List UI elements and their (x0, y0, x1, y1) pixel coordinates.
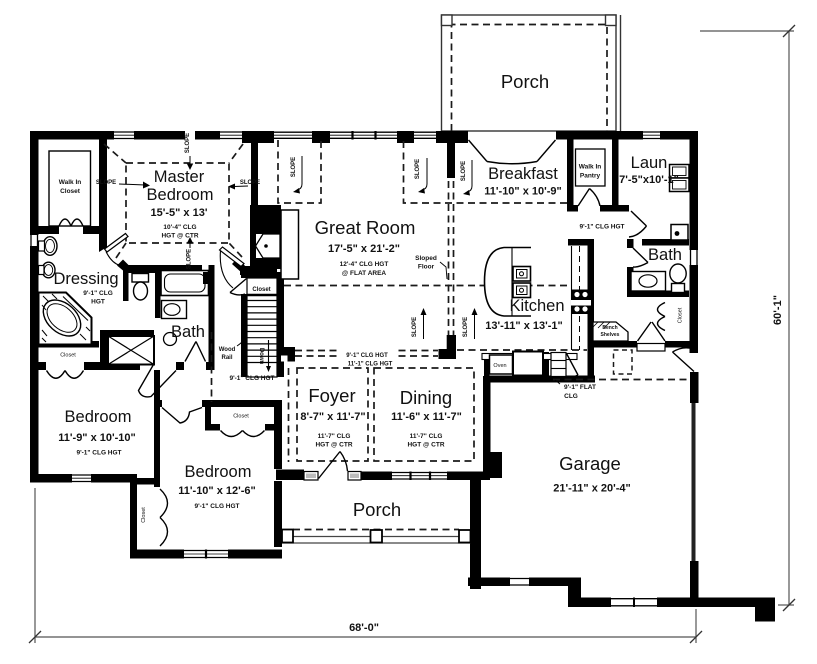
svg-text:10'-4" CLG: 10'-4" CLG (163, 224, 196, 231)
svg-text:11'-7" CLG: 11'-7" CLG (410, 433, 443, 440)
svg-text:9'-1" FLAT: 9'-1" FLAT (564, 384, 596, 391)
svg-text:HGT @ CTR: HGT @ CTR (407, 442, 444, 449)
svg-text:SLOPE: SLOPE (187, 249, 193, 269)
svg-text:HGT @ CTR: HGT @ CTR (161, 233, 198, 240)
svg-text:Closet: Closet (678, 307, 684, 323)
svg-text:13'-11" x 13'-1": 13'-11" x 13'-1" (485, 320, 562, 332)
svg-text:9'-1" CLG HGT: 9'-1" CLG HGT (346, 353, 388, 359)
svg-text:Floor: Floor (418, 264, 435, 271)
svg-text:Sloped: Sloped (415, 255, 437, 262)
svg-text:Wood: Wood (219, 347, 236, 353)
svg-text:Closet: Closet (60, 353, 76, 359)
svg-text:Walk In: Walk In (59, 179, 82, 186)
svg-text:Down: Down (258, 348, 264, 365)
svg-text:Bath: Bath (171, 323, 205, 341)
svg-text:Bedroom: Bedroom (185, 463, 252, 481)
svg-text:Porch: Porch (353, 499, 401, 520)
svg-text:7'-5"x10'-1": 7'-5"x10'-1" (619, 174, 679, 186)
svg-text:Dining: Dining (400, 387, 452, 408)
svg-text:Shelves: Shelves (601, 332, 620, 338)
svg-text:11'-10" x 10'-9": 11'-10" x 10'-9" (484, 186, 561, 198)
svg-text:Closet: Closet (60, 188, 81, 195)
svg-text:Oven: Oven (493, 363, 506, 369)
svg-text:SLOPE: SLOPE (291, 157, 297, 177)
svg-text:SLOPE: SLOPE (463, 317, 469, 337)
svg-text:Great Room: Great Room (315, 217, 416, 238)
svg-text:9'-1" CLG: 9'-1" CLG (83, 290, 113, 297)
svg-text:SLOPE: SLOPE (185, 133, 191, 153)
svg-text:Breakfast: Breakfast (488, 165, 558, 183)
svg-text:11'-7" CLG: 11'-7" CLG (318, 433, 351, 440)
svg-text:11'-1" CLG HGT: 11'-1" CLG HGT (348, 362, 393, 368)
svg-text:21'-11" x 20'-4": 21'-11" x 20'-4" (553, 483, 630, 495)
svg-text:9'-1" CLG HGT: 9'-1" CLG HGT (579, 224, 624, 231)
svg-text:Closet: Closet (141, 507, 147, 523)
svg-text:15'-5" x 13': 15'-5" x 13' (151, 207, 208, 219)
svg-text:CLG: CLG (564, 393, 578, 400)
svg-text:SLOPE: SLOPE (96, 180, 116, 186)
svg-text:68'-0": 68'-0" (349, 622, 379, 634)
svg-text:11'-6" x 11'-7": 11'-6" x 11'-7" (391, 411, 462, 423)
svg-text:11'-9" x 10'-10": 11'-9" x 10'-10" (58, 432, 135, 444)
svg-text:SLOPE: SLOPE (412, 317, 418, 337)
svg-text:Rail: Rail (221, 355, 232, 361)
svg-text:Garage: Garage (559, 453, 621, 474)
svg-text:8'-7" x 11'-7": 8'-7" x 11'-7" (300, 411, 365, 423)
svg-text:SLOPE: SLOPE (240, 180, 260, 186)
svg-text:Walk In: Walk In (579, 164, 602, 171)
svg-text:Dressing: Dressing (53, 270, 118, 288)
svg-text:9'-1" CLG HGT: 9'-1" CLG HGT (76, 450, 121, 457)
svg-text:Closet: Closet (233, 414, 249, 420)
svg-text:Porch: Porch (501, 71, 549, 92)
svg-text:SLOPE: SLOPE (461, 161, 467, 181)
svg-text:17'-5" x 21'-2": 17'-5" x 21'-2" (328, 243, 400, 255)
svg-text:Kitchen: Kitchen (509, 297, 564, 315)
svg-text:12'-4" CLG HGT: 12'-4" CLG HGT (340, 261, 389, 268)
svg-text:Bath: Bath (648, 246, 682, 264)
svg-text:Bedroom: Bedroom (65, 408, 132, 426)
svg-text:9'-1" CLG HGT: 9'-1" CLG HGT (229, 375, 274, 382)
svg-text:9'-1" CLG HGT: 9'-1" CLG HGT (194, 503, 239, 510)
svg-text:SLOPE: SLOPE (415, 159, 421, 179)
svg-text:Foyer: Foyer (308, 385, 355, 406)
svg-text:Pantry: Pantry (580, 173, 601, 180)
svg-text:@ FLAT AREA: @ FLAT AREA (342, 270, 387, 277)
svg-text:Master: Master (154, 168, 205, 186)
svg-text:11'-10" x 12'-6": 11'-10" x 12'-6" (178, 485, 255, 497)
svg-text:Laun: Laun (631, 154, 668, 172)
svg-text:60'-1": 60'-1" (772, 295, 784, 325)
svg-text:HGT: HGT (91, 299, 105, 306)
svg-text:HGT @ CTR: HGT @ CTR (315, 442, 352, 449)
svg-text:Bench: Bench (602, 325, 617, 331)
svg-text:Bedroom: Bedroom (147, 186, 214, 204)
svg-text:Closet: Closet (252, 287, 270, 293)
